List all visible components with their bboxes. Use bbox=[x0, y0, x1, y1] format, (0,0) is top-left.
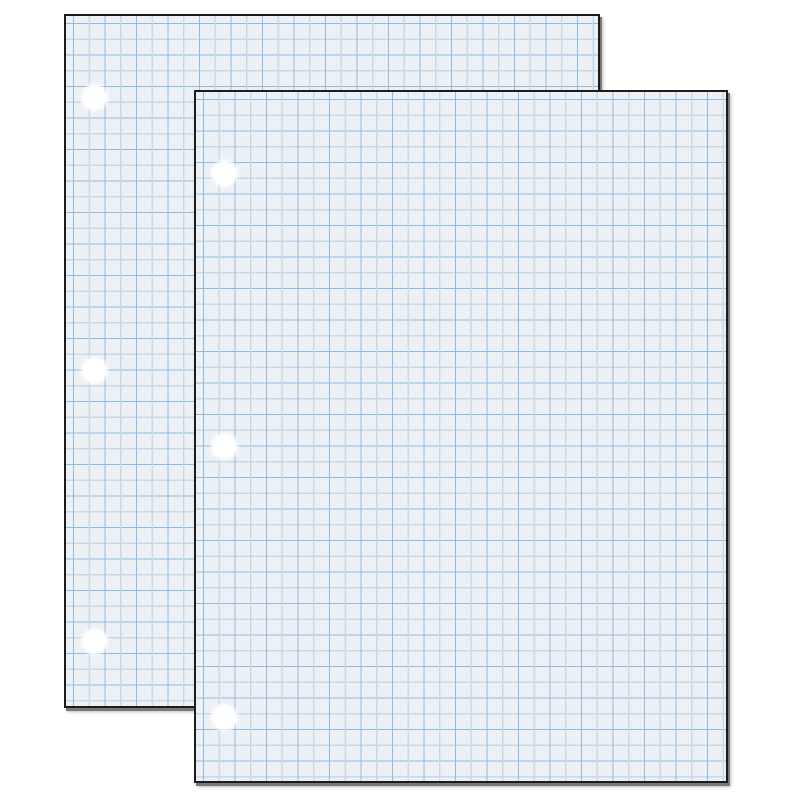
graph-paper-sheet-front bbox=[194, 90, 728, 783]
punch-hole bbox=[213, 162, 236, 185]
punch-hole bbox=[83, 86, 106, 109]
punch-hole bbox=[213, 435, 236, 458]
punch-hole bbox=[83, 359, 106, 382]
punch-hole bbox=[213, 706, 236, 729]
product-image bbox=[0, 0, 800, 800]
punch-hole bbox=[83, 630, 106, 653]
